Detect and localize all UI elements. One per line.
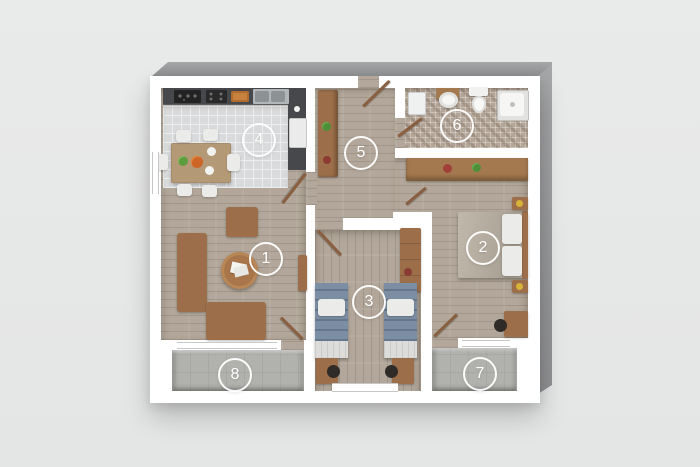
bed-pillow xyxy=(318,299,345,316)
dining-chair xyxy=(202,185,217,197)
room-number-living: 1 xyxy=(249,242,283,276)
bedroom-twin-door-bridge xyxy=(315,218,343,230)
desk-chair xyxy=(494,319,507,332)
room-number-label: 2 xyxy=(479,239,488,257)
cooktop-icon xyxy=(206,90,227,103)
wall-hall-bathroom xyxy=(395,88,405,118)
armchair xyxy=(226,207,258,237)
desk-chair xyxy=(385,365,398,378)
wall-bathroom-bedroom xyxy=(395,148,528,158)
window-living-left xyxy=(152,152,159,194)
window-living-balcony xyxy=(177,342,277,349)
living-hall-door-bridge xyxy=(306,172,317,205)
window-bedroom-balcony xyxy=(462,340,510,347)
bed-pillow xyxy=(502,246,522,276)
plant-icon xyxy=(443,164,452,173)
dining-chair xyxy=(176,130,191,142)
room-number-bedroom-double: 2 xyxy=(466,231,500,265)
desk-chair xyxy=(327,365,340,378)
single-bed xyxy=(315,283,348,358)
flower-icon xyxy=(516,200,523,207)
bed-foot xyxy=(384,341,417,358)
room-number-balcony-right: 7 xyxy=(463,357,497,391)
room-number-label: 3 xyxy=(365,293,374,311)
plant-icon xyxy=(472,163,481,172)
single-bed xyxy=(384,283,417,358)
dining-chair xyxy=(203,129,218,141)
room-number-label: 1 xyxy=(262,250,271,268)
room-number-hallway: 5 xyxy=(344,136,378,170)
plate-icon xyxy=(207,147,216,156)
sofa xyxy=(177,233,207,312)
room-number-label: 7 xyxy=(476,365,485,383)
plant-icon xyxy=(323,156,331,164)
roof-edge-right xyxy=(538,64,552,394)
wall-hall-bedroom-twin xyxy=(343,218,395,230)
dishwasher-icon xyxy=(289,118,307,148)
room-number-label: 6 xyxy=(453,117,462,135)
floor-plan: 1 2 3 4 5 6 7 8 xyxy=(0,0,700,467)
wall-bedrooms-separator xyxy=(421,212,432,391)
bed-pillow xyxy=(502,214,522,244)
room-number-label: 5 xyxy=(357,144,366,162)
desk xyxy=(504,311,528,337)
sink-basin-left xyxy=(255,91,269,102)
shower-drain xyxy=(510,102,515,107)
window-bedroom-twin xyxy=(332,383,398,392)
room-number-label: 8 xyxy=(231,366,240,384)
room-number-bedroom-twin: 3 xyxy=(352,285,386,319)
room-number-balcony-left: 8 xyxy=(218,358,252,392)
sink-knob xyxy=(294,106,300,112)
room-number-kitchen: 4 xyxy=(242,123,276,157)
washing-machine-icon xyxy=(408,92,426,115)
toilet-icon xyxy=(469,87,488,96)
loveseat xyxy=(206,302,266,340)
hall-cabinet xyxy=(318,90,338,177)
stove-icon xyxy=(174,90,201,103)
plant-icon xyxy=(322,122,331,131)
dining-chair xyxy=(177,184,192,196)
bed-pillow xyxy=(387,299,414,316)
dining-chair xyxy=(227,154,240,171)
sink-basin-right xyxy=(271,91,285,102)
salad-bowl-icon xyxy=(178,156,188,166)
console-table xyxy=(298,255,307,291)
bathroom-sink-icon xyxy=(439,92,458,108)
bed-headboard xyxy=(522,211,528,279)
roof-edge-top xyxy=(150,62,552,76)
wardrobe xyxy=(406,158,528,181)
bed-foot xyxy=(315,341,348,358)
room-number-label: 4 xyxy=(255,131,264,149)
dish-icon xyxy=(191,156,203,168)
plate-icon xyxy=(205,166,214,175)
plant-icon xyxy=(404,268,412,276)
cutting-board-icon xyxy=(231,91,249,102)
balcony-left-door-bridge xyxy=(281,340,304,350)
entrance-door-bridge xyxy=(358,76,379,88)
flower-icon xyxy=(516,283,523,290)
balcony-right-door-bridge xyxy=(432,338,458,348)
room-number-bathroom: 6 xyxy=(440,109,474,143)
